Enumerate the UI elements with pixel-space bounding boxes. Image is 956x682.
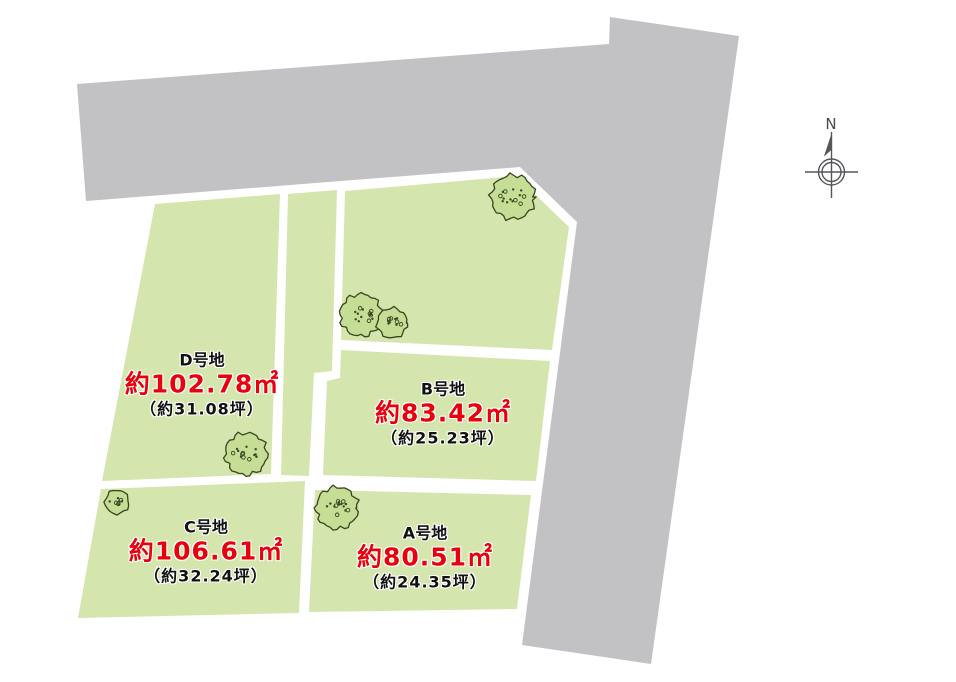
tree-speckle [396,317,398,319]
tree-speckle [355,318,357,320]
tree-speckle [254,453,256,455]
tree-speckle [511,200,513,202]
tree-speckle [358,320,360,322]
tree-speckle [255,448,257,450]
compass: N [805,115,858,198]
tree-speckle [255,456,257,458]
tree-speckle [354,311,356,313]
tree-speckle [520,189,522,191]
tree-speckle [512,188,514,190]
tree-speckle [509,198,511,200]
tree-speckle [502,197,504,199]
lot-C-tsubo: （約32.24坪） [129,567,283,587]
lot-A-area: 約80.51㎡ [357,543,493,573]
lot-C-label: C号地 約106.61㎡ （約32.24坪） [129,517,283,586]
tree-speckle [343,505,345,507]
lot-D-label: D号地 約102.78㎡ （約31.08坪） [125,350,279,419]
site-plan: N D号地 約102.78㎡ （約31.08坪） B号地 約83.42㎡ （約2… [0,0,956,682]
lot-D-area: 約102.78㎡ [125,370,279,400]
tree-speckle [506,201,508,203]
tree-speckle [357,313,359,315]
lot-C-area: 約106.61㎡ [129,537,283,567]
tree-speckle [345,503,347,505]
lot-A-label: A号地 約80.51㎡ （約24.35坪） [357,523,493,592]
compass-needle-flag [825,135,832,155]
tree-speckle [502,200,504,202]
tree-speckle [340,503,342,505]
tree-speckle [109,500,111,502]
tree-speckle [329,502,331,504]
lot-B-tsubo: （約25.23坪） [375,429,511,449]
lot-B-label: B号地 約83.42㎡ （約25.23坪） [375,379,511,448]
tree-speckle [240,456,242,458]
tree-speckle [371,318,373,320]
tree-speckle [117,497,119,499]
lot-D-tsubo: （約31.08坪） [125,400,279,420]
compass-north-label: N [825,115,836,133]
tree-speckle [519,194,521,196]
tree-speckle [237,450,239,452]
lot-A-tsubo: （約24.35坪） [357,573,493,593]
tree-speckle [360,316,362,318]
lot-A-name: A号地 [357,523,493,542]
tree-speckle [121,500,123,502]
tree-speckle [236,448,238,450]
tree-speckle [245,446,247,448]
lot-B-area: 約83.42㎡ [375,399,511,429]
tree-speckle [326,505,328,507]
tree-speckle [387,322,389,324]
lot-B-name: B号地 [375,379,511,398]
lot-D-name: D号地 [125,350,279,369]
lot-C-name: C号地 [129,517,283,536]
